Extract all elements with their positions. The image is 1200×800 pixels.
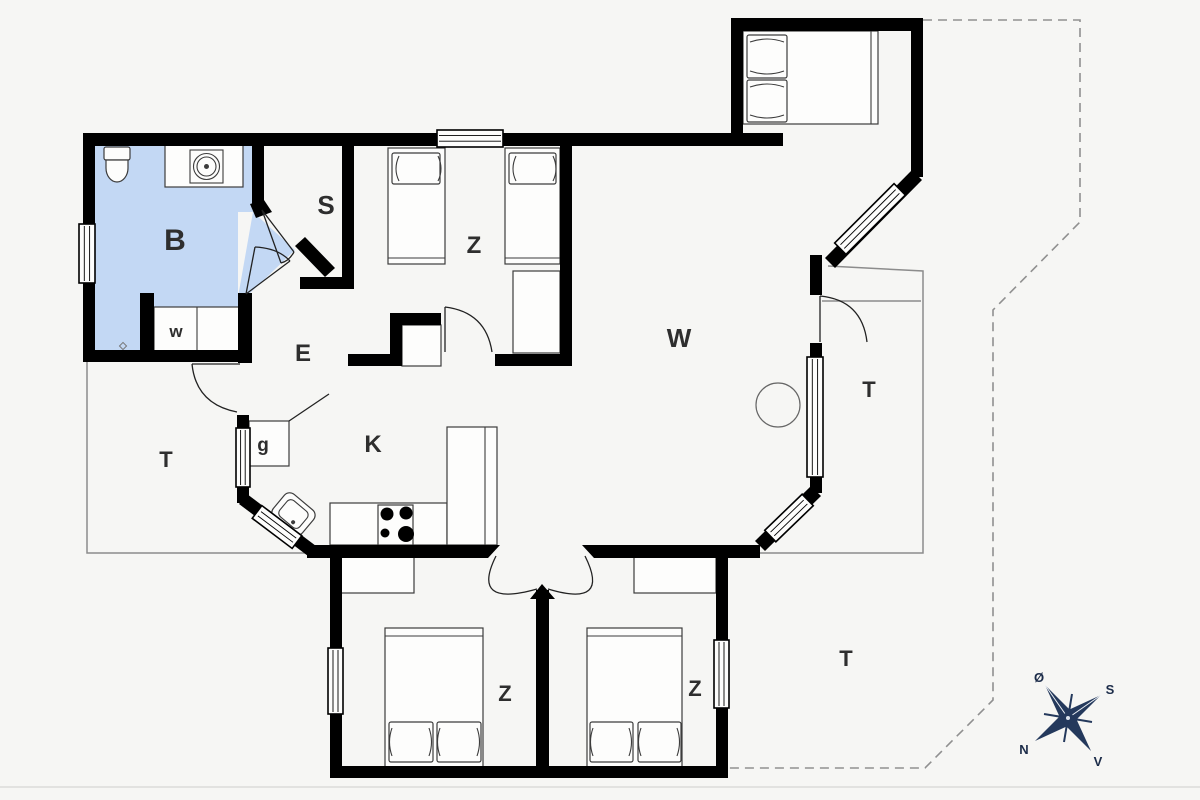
closet-bedroom-left	[341, 554, 414, 593]
bed-twin-left	[388, 148, 445, 264]
label-cupboard: g	[257, 435, 269, 456]
floor-plan: B S Z W E w g K T T T Z Z Ø S N V	[0, 0, 1200, 800]
label-terrace-south: T	[839, 646, 853, 671]
window-bathroom-west	[79, 224, 95, 283]
label-washer: w	[168, 322, 183, 341]
bed-alcove	[743, 31, 878, 124]
washer-cabinet	[154, 307, 240, 351]
bed-double-left	[385, 628, 483, 768]
compass-north-label: N	[1019, 742, 1028, 757]
compass-south-label: S	[1106, 682, 1115, 697]
bed-twin-right	[505, 148, 560, 264]
toilet-icon	[104, 147, 130, 182]
bed-double-right	[587, 628, 682, 768]
shower-icon	[165, 145, 243, 187]
label-bathroom: B	[164, 224, 186, 257]
stove-icon	[378, 505, 414, 545]
compass-west-label: V	[1094, 754, 1103, 769]
cupboard-g	[249, 421, 289, 466]
window-bedroom-top	[437, 130, 503, 147]
window-kitchen-west	[236, 428, 250, 487]
label-living-room: W	[667, 323, 692, 353]
floor-plan-page: B S Z W E w g K T T T Z Z Ø S N V	[0, 0, 1200, 800]
window-bedroom-left	[328, 648, 343, 714]
closet-bedroom-right	[634, 554, 716, 593]
window-living-east	[807, 357, 823, 477]
label-entry: E	[295, 340, 311, 367]
hall-closet	[402, 325, 441, 366]
wardrobe-top-bedroom	[513, 271, 560, 353]
label-bedroom-south-right: Z	[688, 676, 701, 701]
label-storage: S	[317, 190, 334, 220]
label-bedroom-south-left: Z	[498, 681, 511, 706]
label-terrace-west: T	[159, 447, 173, 472]
label-kitchen: K	[364, 431, 382, 458]
compass-east-label: Ø	[1034, 670, 1044, 685]
window-bedroom-right	[714, 640, 729, 708]
label-terrace-east: T	[862, 377, 876, 402]
label-bedroom-top: Z	[467, 232, 482, 259]
